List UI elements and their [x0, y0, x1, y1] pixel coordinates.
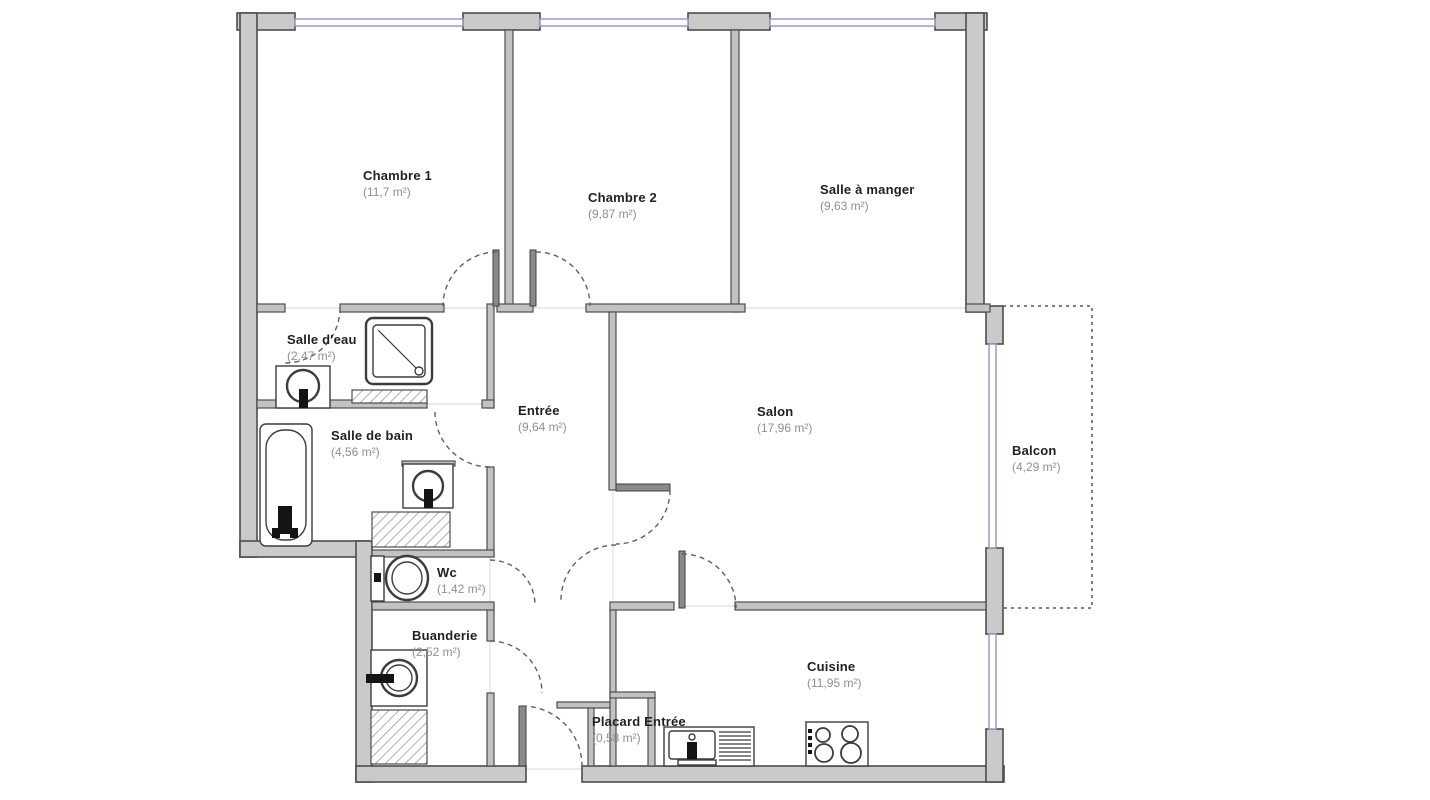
room-name-salle-a-manger: Salle à manger: [820, 182, 915, 197]
door-arc-entrance: [522, 706, 582, 766]
room-area-balcon: (4,29 m²): [1012, 460, 1061, 474]
wall-h-mid-stub: [966, 304, 990, 312]
wall-h-mid-1: [257, 304, 285, 312]
wall-buanderie-corridor: [487, 693, 494, 766]
wall-bottom-right: [582, 766, 1004, 782]
room-name-salon: Salon: [757, 404, 812, 419]
room-name-chambre-2: Chambre 2: [588, 190, 657, 205]
room-label-chambre-1: Chambre 1 (11,7 m²): [363, 168, 432, 199]
room-label-cuisine: Cuisine (11,95 m²): [807, 659, 861, 690]
wall-bottom-left: [356, 766, 526, 782]
burner-bottom-left: [815, 744, 833, 762]
room-area-salon: (17,96 m²): [757, 421, 812, 435]
wall-sdb-wc: [372, 550, 494, 557]
wall-h-mid-4: [586, 304, 745, 312]
wall-chambre1-chambre2: [505, 30, 513, 306]
wall-left: [240, 13, 257, 557]
room-name-salle-d-eau: Salle d'eau: [287, 332, 357, 347]
room-area-chambre-1: (11,7 m²): [363, 185, 432, 199]
hatch-salle-de-bain: [372, 512, 450, 547]
wall-entree-salon: [609, 312, 616, 490]
wall-placard-top: [610, 692, 655, 698]
window-top-3: [770, 19, 935, 26]
window-right-cuisine: [989, 634, 996, 729]
wall-h-mid-3: [497, 304, 533, 312]
door-leaf-cuisine: [679, 551, 685, 608]
floorplan-canvas: Chambre 1 (11,7 m²) Chambre 2 (9,87 m²) …: [0, 0, 1430, 800]
window-right-salon: [989, 344, 996, 548]
bathtub: [260, 424, 312, 546]
room-name-chambre-1: Chambre 1: [363, 168, 432, 183]
room-label-salle-d-eau: Salle d'eau (2,47 m²): [287, 332, 357, 363]
shower: [366, 318, 432, 384]
room-label-salon: Salon (17,96 m²): [757, 404, 812, 435]
door-leaf-chambre1: [493, 250, 499, 306]
room-label-placard-entree: Placard Entrée (0,58 m²): [592, 714, 686, 745]
door-leaf-salon: [616, 484, 670, 491]
bathtub-tap: [278, 506, 292, 534]
room-area-salle-de-bain: (4,56 m²): [331, 445, 413, 459]
room-area-salle-d-eau: (2,47 m²): [287, 349, 357, 363]
stove: [806, 722, 868, 766]
toilet-bowl-inner: [392, 562, 422, 594]
washbasin-salle-de-bain: [403, 464, 453, 508]
room-area-chambre-2: (9,87 m²): [588, 207, 657, 221]
room-region-salon: [616, 312, 986, 602]
washbasin-tap: [424, 489, 433, 508]
room-region-entree: [494, 312, 609, 702]
wall-vestibule-h: [557, 702, 610, 708]
room-name-salle-de-bain: Salle de bain: [331, 428, 413, 443]
room-name-cuisine: Cuisine: [807, 659, 861, 674]
room-label-buanderie: Buanderie (2,52 m²): [412, 628, 477, 659]
wall-left-lower: [356, 541, 372, 782]
room-area-entree: (9,64 m²): [518, 420, 567, 434]
room-label-wc: Wc (1,42 m²): [437, 565, 486, 596]
washbasin-salle-d-eau: [276, 366, 330, 408]
wall-sdb-entree: [487, 467, 494, 557]
washbasin-tap: [299, 389, 308, 408]
wall-salledeau-sdb-2: [482, 400, 494, 408]
wall-corridor-cuisine: [610, 602, 674, 610]
toilet: [371, 556, 428, 601]
wall-salledeau-entree: [487, 304, 494, 408]
wall-right-corner: [986, 729, 1003, 782]
room-name-entree: Entrée: [518, 403, 567, 418]
room-region-chambre-1: [257, 30, 505, 304]
wall-top-pier-2: [463, 13, 540, 30]
door-leaf-entrance: [519, 706, 526, 766]
room-area-buanderie: (2,52 m²): [412, 645, 477, 659]
wall-wc-buanderie: [372, 602, 494, 610]
shower-drain: [415, 367, 423, 375]
burner-bottom-right: [841, 743, 861, 763]
stove-knob-2: [808, 736, 812, 740]
room-name-wc: Wc: [437, 565, 486, 580]
floorplan-drawing: [0, 0, 1430, 800]
wall-top-pier-3: [688, 13, 770, 30]
sink-base: [678, 760, 716, 765]
wall-salon-cuisine: [735, 602, 986, 610]
room-label-entree: Entrée (9,64 m²): [518, 403, 567, 434]
stove-knob-4: [808, 750, 812, 754]
burner-top-right: [842, 726, 858, 742]
wall-chambre2-sallemanger: [731, 30, 739, 312]
hatch-buanderie: [371, 710, 427, 764]
wall-right-pier-b: [986, 548, 1003, 634]
room-name-placard-entree: Placard Entrée: [592, 714, 686, 729]
bathtub-foot-left: [272, 528, 280, 538]
stove-knob-1: [808, 729, 812, 733]
window-top-1: [295, 19, 463, 26]
room-region-salle-a-manger: [739, 30, 966, 304]
wall-right-upper: [966, 13, 984, 312]
room-label-chambre-2: Chambre 2 (9,87 m²): [588, 190, 657, 221]
burner-top-left: [816, 728, 830, 742]
hatch-salle-d-eau: [352, 390, 427, 403]
room-name-buanderie: Buanderie: [412, 628, 477, 643]
bathtub-foot-right: [290, 528, 298, 538]
wall-h-mid-2: [340, 304, 444, 312]
room-name-balcon: Balcon: [1012, 443, 1061, 458]
sink-drain: [689, 734, 695, 740]
room-area-placard-entree: (0,58 m²): [592, 731, 686, 745]
door-leaf-chambre2: [530, 250, 536, 306]
washing-machine-valve: [366, 674, 394, 683]
toilet-flush: [374, 573, 381, 582]
room-area-salle-a-manger: (9,63 m²): [820, 199, 915, 213]
room-label-salle-a-manger: Salle à manger (9,63 m²): [820, 182, 915, 213]
room-area-wc: (1,42 m²): [437, 582, 486, 596]
stove-knob-3: [808, 743, 812, 747]
room-region-chambre-2: [513, 30, 731, 304]
room-label-salle-de-bain: Salle de bain (4,56 m²): [331, 428, 413, 459]
room-area-cuisine: (11,95 m²): [807, 676, 861, 690]
room-label-balcon: Balcon (4,29 m²): [1012, 443, 1061, 474]
window-top-2: [540, 19, 688, 26]
